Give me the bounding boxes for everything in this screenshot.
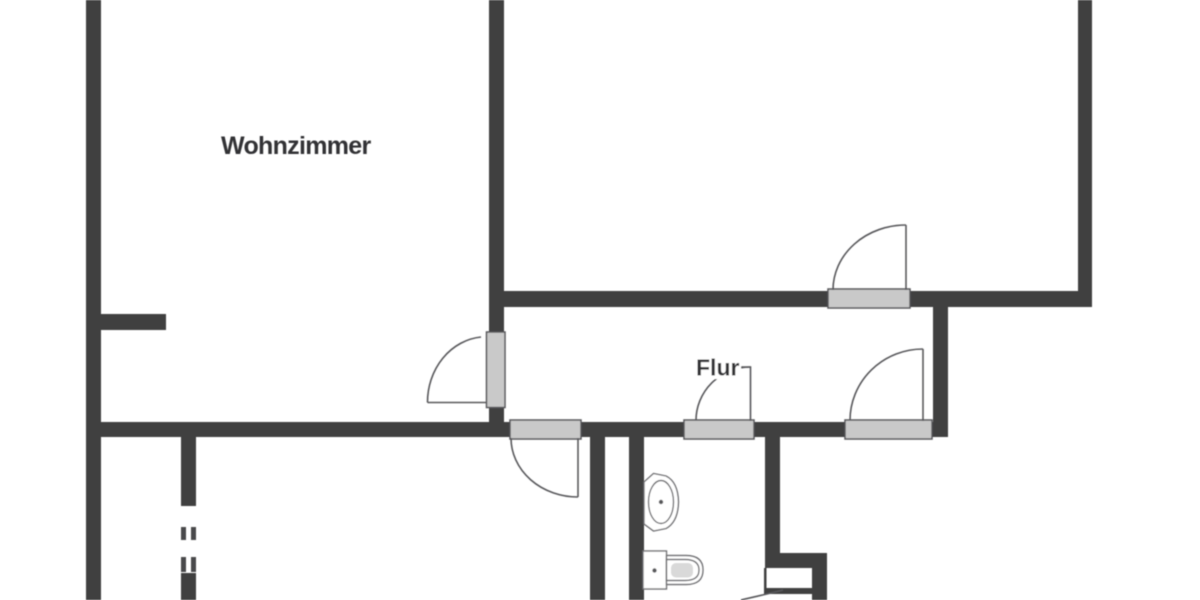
svg-text:Wohnzimmer: Wohnzimmer [221,132,371,160]
svg-text:Flur: Flur [696,355,739,381]
